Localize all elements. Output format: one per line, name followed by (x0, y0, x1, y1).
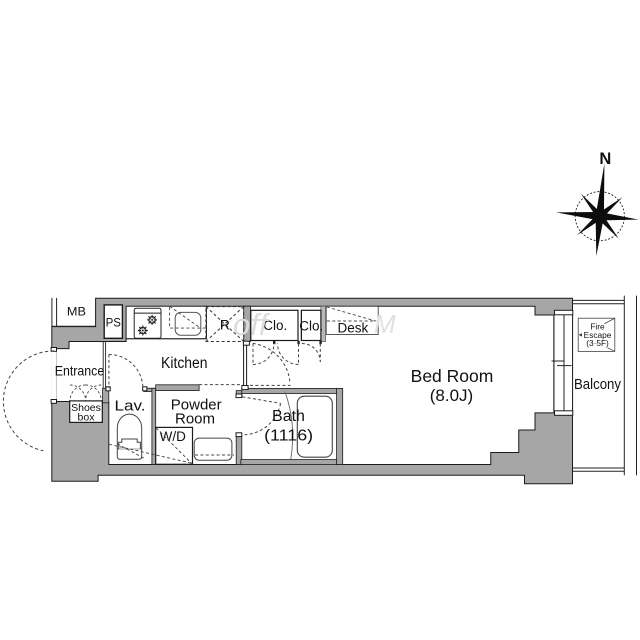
svg-text:off: off (233, 307, 271, 342)
svg-text:Kitchen: Kitchen (161, 355, 208, 372)
svg-text:PS: PS (106, 317, 122, 329)
svg-text:Bed Room: Bed Room (411, 366, 494, 386)
svg-text:W/D: W/D (160, 429, 186, 444)
svg-text:Lav.: Lav. (115, 397, 146, 414)
svg-text:N: N (599, 150, 611, 168)
svg-text:Entrance: Entrance (55, 363, 105, 379)
svg-text:(1116): (1116) (264, 428, 313, 445)
svg-text:(3·5F): (3·5F) (586, 338, 609, 348)
svg-text:Room: Room (175, 411, 215, 428)
svg-text:Bath: Bath (272, 408, 305, 425)
svg-text:(8.0J): (8.0J) (430, 386, 473, 405)
svg-text:R: R (220, 317, 230, 332)
svg-text:MB: MB (67, 305, 86, 319)
svg-text:Balcony: Balcony (574, 377, 622, 393)
svg-text:Desk: Desk (338, 321, 369, 336)
svg-text:box: box (78, 412, 96, 424)
svg-text:M: M (374, 309, 396, 339)
svg-text:Clo.: Clo. (299, 319, 323, 334)
